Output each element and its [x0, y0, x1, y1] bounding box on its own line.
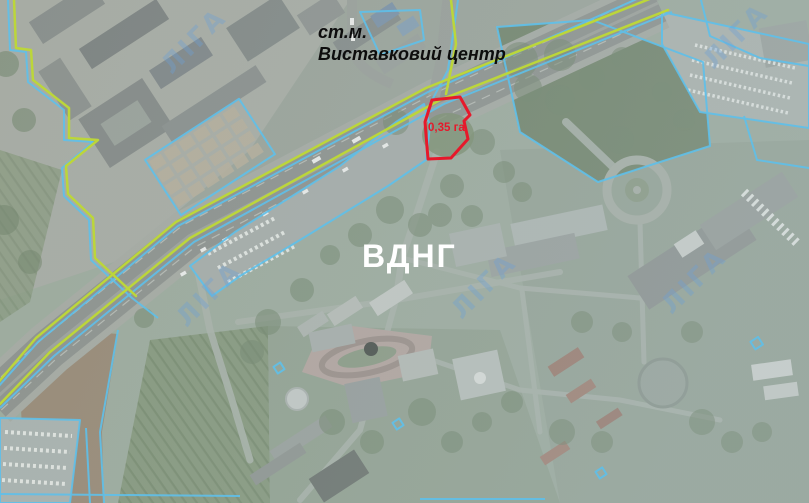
satellite-map-screenshot: 0,35 га ЛІГА ЛІГА ЛІГА ЛІГА ЛІГА ст.м. В… [0, 0, 809, 503]
satellite-map: 0,35 га ЛІГА ЛІГА ЛІГА ЛІГА ЛІГА ст.м. В… [0, 0, 809, 503]
metro-label-line2: Виставковий центр [318, 44, 506, 64]
plot-area-label: 0,35 га [428, 122, 465, 134]
vdnh-site-label: ВДНГ [362, 238, 457, 274]
metro-label-line1: ст.м. [318, 22, 367, 42]
